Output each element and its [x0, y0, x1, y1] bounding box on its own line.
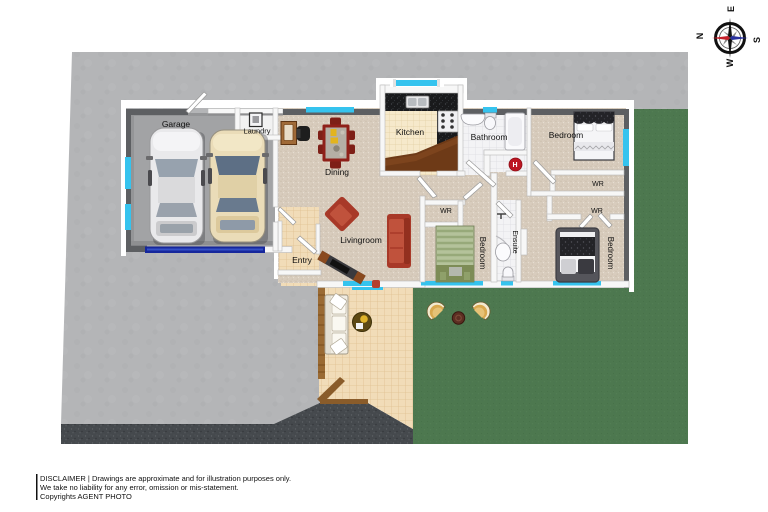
svg-text:Kitchen: Kitchen: [396, 127, 425, 137]
svg-text:E: E: [726, 6, 736, 12]
svg-text:We take no liability for any e: We take no liability for any error, omis…: [40, 483, 239, 492]
svg-text:Livingroom: Livingroom: [340, 235, 382, 245]
svg-text:Dining: Dining: [325, 167, 349, 177]
svg-text:S: S: [752, 37, 762, 43]
svg-text:Copyrights AGENT PHOTO: Copyrights AGENT PHOTO: [40, 492, 132, 501]
svg-text:Garage: Garage: [162, 119, 191, 129]
svg-text:Bedroom: Bedroom: [549, 130, 584, 140]
svg-text:Bathroom: Bathroom: [471, 132, 508, 142]
svg-text:WR: WR: [591, 208, 603, 215]
svg-text:Bedroom: Bedroom: [478, 237, 487, 270]
svg-text:H: H: [512, 162, 517, 169]
svg-text:WR: WR: [592, 181, 604, 188]
svg-text:Bedroom: Bedroom: [606, 237, 615, 270]
svg-text:Entry: Entry: [292, 255, 313, 265]
svg-text:Ensuite: Ensuite: [511, 230, 518, 253]
svg-text:DISCLAIMER | Drawings are appr: DISCLAIMER | Drawings are approximate an…: [40, 474, 291, 483]
svg-text:WR: WR: [440, 208, 452, 215]
svg-text:N: N: [695, 33, 705, 40]
svg-text:Laundry: Laundry: [243, 127, 270, 136]
svg-text:W: W: [725, 58, 735, 67]
